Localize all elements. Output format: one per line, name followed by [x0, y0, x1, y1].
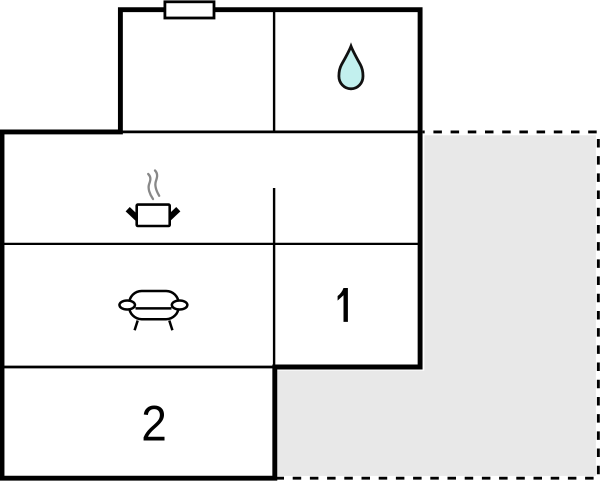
- svg-text:2: 2: [141, 397, 167, 452]
